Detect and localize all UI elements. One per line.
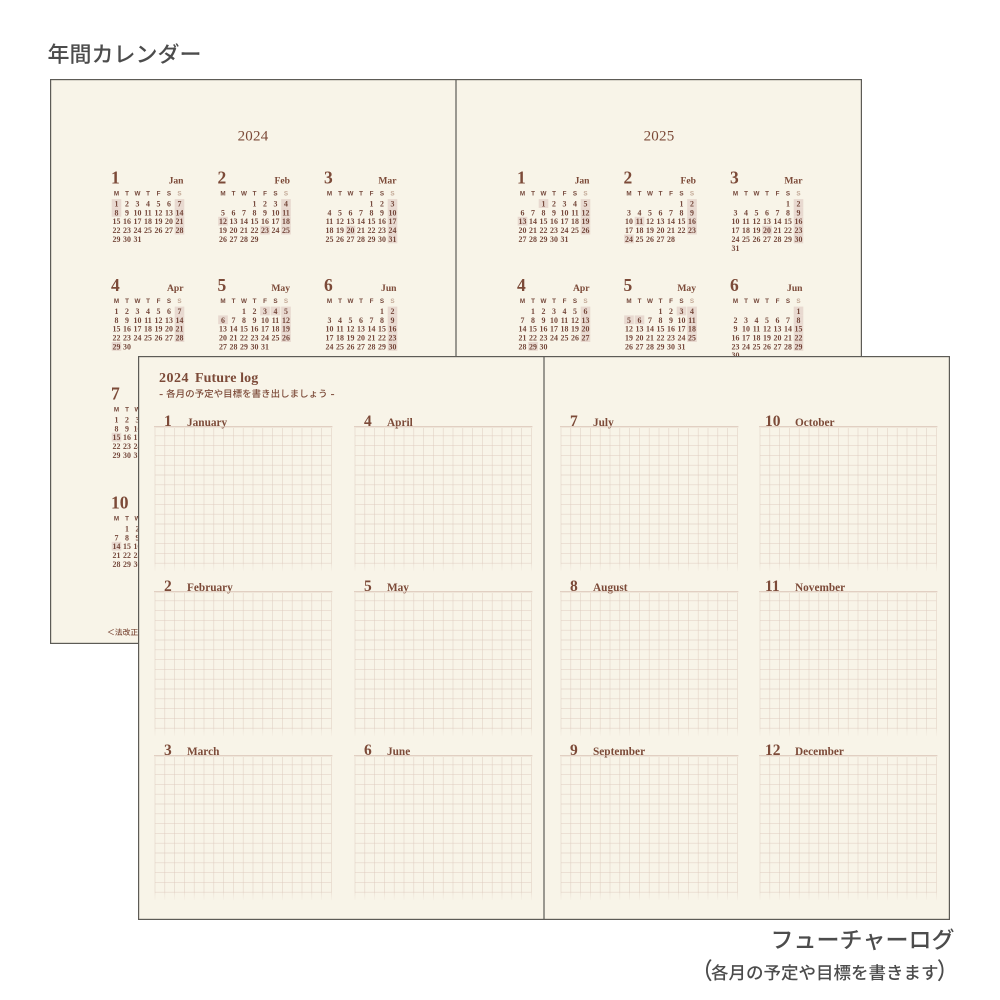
- svg-text:7: 7: [232, 316, 236, 325]
- svg-text:13: 13: [657, 217, 665, 226]
- svg-text:S: S: [390, 191, 394, 198]
- svg-text:24: 24: [550, 334, 558, 343]
- svg-text:8: 8: [125, 533, 129, 542]
- svg-text:W: W: [135, 191, 141, 198]
- svg-text:22: 22: [123, 551, 131, 560]
- svg-text:26: 26: [155, 334, 163, 343]
- svg-text:F: F: [370, 191, 374, 198]
- svg-text:14: 14: [667, 217, 675, 226]
- svg-text:14: 14: [519, 325, 527, 334]
- svg-text:T: T: [125, 191, 129, 198]
- svg-text:14: 14: [646, 325, 654, 334]
- svg-text:15: 15: [378, 325, 386, 334]
- svg-text:10: 10: [765, 413, 781, 430]
- svg-text:Mar: Mar: [784, 176, 803, 187]
- svg-text:1: 1: [659, 307, 663, 316]
- svg-text:11: 11: [561, 316, 569, 325]
- svg-text:8: 8: [680, 208, 684, 217]
- svg-text:8: 8: [570, 578, 578, 595]
- svg-text:9: 9: [253, 316, 257, 325]
- svg-text:1: 1: [115, 200, 119, 209]
- svg-text:10: 10: [625, 217, 633, 226]
- svg-text:M: M: [220, 298, 225, 305]
- svg-text:15: 15: [123, 542, 131, 551]
- svg-text:20: 20: [357, 334, 365, 343]
- svg-text:S: S: [167, 191, 171, 198]
- svg-text:2: 2: [542, 307, 546, 316]
- svg-text:1: 1: [517, 168, 526, 188]
- svg-text:4: 4: [744, 208, 748, 217]
- svg-text:22: 22: [540, 226, 548, 235]
- svg-text:4: 4: [111, 275, 120, 295]
- svg-text:16: 16: [732, 334, 740, 343]
- svg-text:4: 4: [338, 316, 342, 325]
- svg-text:15: 15: [251, 217, 259, 226]
- svg-text:19: 19: [763, 334, 771, 343]
- svg-text:F: F: [669, 191, 673, 198]
- svg-text:7: 7: [531, 208, 535, 217]
- svg-text:T: T: [765, 191, 769, 198]
- svg-text:28: 28: [519, 342, 527, 351]
- svg-text:14: 14: [230, 325, 238, 334]
- svg-text:M: M: [733, 191, 738, 198]
- svg-text:Mar: Mar: [378, 176, 397, 187]
- svg-text:31: 31: [732, 244, 740, 253]
- svg-text:20: 20: [347, 226, 355, 235]
- svg-text:M: M: [327, 191, 332, 198]
- svg-text:8: 8: [115, 208, 119, 217]
- svg-text:23: 23: [389, 334, 397, 343]
- svg-text:1: 1: [125, 525, 129, 534]
- svg-text:W: W: [754, 298, 760, 305]
- svg-text:3: 3: [744, 316, 748, 325]
- svg-text:12: 12: [282, 316, 290, 325]
- svg-text:25: 25: [144, 226, 152, 235]
- svg-text:20: 20: [165, 217, 173, 226]
- svg-text:6: 6: [167, 200, 171, 209]
- svg-text:1: 1: [164, 413, 172, 430]
- svg-text:5: 5: [157, 307, 161, 316]
- svg-text:29: 29: [368, 235, 376, 244]
- svg-text:28: 28: [113, 560, 121, 569]
- svg-text:28: 28: [357, 235, 365, 244]
- svg-text:2: 2: [218, 168, 227, 188]
- svg-text:T: T: [232, 298, 236, 305]
- svg-text:2: 2: [624, 168, 633, 188]
- svg-text:30: 30: [540, 342, 548, 351]
- svg-text:31: 31: [561, 235, 569, 244]
- svg-text:25: 25: [272, 334, 280, 343]
- svg-text:2024: 2024: [159, 371, 189, 386]
- svg-text:7: 7: [776, 208, 780, 217]
- svg-text:21: 21: [646, 334, 654, 343]
- svg-text:19: 19: [155, 325, 163, 334]
- svg-text:20: 20: [219, 334, 227, 343]
- svg-text:26: 26: [582, 226, 590, 235]
- svg-text:11: 11: [688, 316, 696, 325]
- svg-text:25: 25: [282, 226, 290, 235]
- svg-text:Jan: Jan: [575, 176, 591, 187]
- svg-text:29: 29: [113, 342, 121, 351]
- svg-text:S: S: [380, 191, 384, 198]
- svg-text:21: 21: [667, 226, 675, 235]
- svg-text:3: 3: [680, 307, 684, 316]
- svg-text:1: 1: [531, 307, 535, 316]
- svg-text:8: 8: [531, 316, 535, 325]
- svg-text:23: 23: [123, 226, 131, 235]
- svg-text:10: 10: [134, 316, 142, 325]
- svg-text:3: 3: [164, 742, 172, 759]
- svg-text:4: 4: [563, 307, 567, 316]
- svg-text:19: 19: [347, 334, 355, 343]
- svg-text:11: 11: [144, 208, 152, 217]
- svg-text:17: 17: [625, 226, 633, 235]
- svg-text:F: F: [370, 298, 374, 305]
- svg-text:3: 3: [627, 208, 631, 217]
- svg-text:15: 15: [529, 325, 537, 334]
- svg-text:13: 13: [763, 217, 771, 226]
- svg-text:15: 15: [113, 325, 121, 334]
- svg-text:T: T: [359, 298, 363, 305]
- svg-text:11: 11: [144, 316, 152, 325]
- svg-text:28: 28: [176, 334, 184, 343]
- svg-text:12: 12: [155, 316, 163, 325]
- svg-text:S: S: [690, 298, 694, 305]
- svg-text:S: S: [573, 191, 577, 198]
- svg-text:T: T: [338, 298, 342, 305]
- svg-text:2: 2: [734, 316, 738, 325]
- svg-text:7: 7: [570, 413, 578, 430]
- svg-text:22: 22: [529, 334, 537, 343]
- svg-text:12: 12: [155, 208, 163, 217]
- svg-text:T: T: [146, 191, 150, 198]
- svg-text:7: 7: [178, 307, 182, 316]
- svg-text:18: 18: [144, 217, 152, 226]
- svg-text:3: 3: [324, 168, 333, 188]
- svg-text:31: 31: [134, 235, 142, 244]
- svg-text:21: 21: [176, 325, 184, 334]
- svg-text:24: 24: [732, 235, 740, 244]
- svg-text:29: 29: [378, 342, 386, 351]
- svg-text:24: 24: [134, 334, 142, 343]
- svg-text:Feb: Feb: [275, 176, 290, 187]
- svg-text:26: 26: [763, 342, 771, 351]
- svg-text:W: W: [647, 298, 653, 305]
- svg-text:T: T: [659, 191, 663, 198]
- svg-text:F: F: [263, 191, 267, 198]
- svg-text:S: S: [177, 298, 181, 305]
- svg-text:T: T: [232, 191, 236, 198]
- svg-text:18: 18: [336, 334, 344, 343]
- svg-text:T: T: [146, 298, 150, 305]
- svg-text:14: 14: [176, 316, 184, 325]
- svg-text:21: 21: [176, 217, 184, 226]
- svg-text:14: 14: [240, 217, 248, 226]
- svg-text:W: W: [241, 298, 247, 305]
- svg-text:25: 25: [144, 334, 152, 343]
- svg-text:22: 22: [678, 226, 686, 235]
- svg-text:20: 20: [230, 226, 238, 235]
- svg-text:13: 13: [165, 316, 173, 325]
- svg-text:S: S: [273, 191, 277, 198]
- svg-text:12: 12: [582, 208, 590, 217]
- svg-text:Feb: Feb: [681, 176, 696, 187]
- svg-text:9: 9: [797, 208, 801, 217]
- svg-text:1: 1: [242, 307, 246, 316]
- svg-text:4: 4: [517, 275, 526, 295]
- svg-text:12: 12: [646, 217, 654, 226]
- svg-text:3: 3: [734, 208, 738, 217]
- svg-text:29: 29: [240, 342, 248, 351]
- svg-text:10: 10: [134, 208, 142, 217]
- svg-text:1: 1: [111, 168, 120, 188]
- svg-text:22: 22: [113, 334, 121, 343]
- svg-text:18: 18: [326, 226, 334, 235]
- svg-text:12: 12: [336, 217, 344, 226]
- svg-text:2: 2: [125, 307, 129, 316]
- svg-text:17: 17: [326, 334, 334, 343]
- svg-text:22: 22: [251, 226, 259, 235]
- svg-text:9: 9: [391, 316, 395, 325]
- svg-text:30: 30: [123, 451, 131, 460]
- svg-text:5: 5: [157, 200, 161, 209]
- svg-text:13: 13: [582, 316, 590, 325]
- svg-text:18: 18: [144, 325, 152, 334]
- svg-text:13: 13: [347, 217, 355, 226]
- svg-text:13: 13: [219, 325, 227, 334]
- svg-text:20: 20: [582, 325, 590, 334]
- svg-text:2: 2: [253, 307, 257, 316]
- svg-text:5: 5: [765, 316, 769, 325]
- svg-text:10: 10: [732, 217, 740, 226]
- svg-text:7: 7: [370, 316, 374, 325]
- svg-text:26: 26: [347, 342, 355, 351]
- svg-text:4: 4: [146, 307, 150, 316]
- svg-text:16: 16: [550, 217, 558, 226]
- svg-text:12: 12: [625, 325, 633, 334]
- svg-text:12: 12: [765, 742, 781, 759]
- svg-text:23: 23: [795, 226, 803, 235]
- svg-text:T: T: [125, 298, 129, 305]
- svg-text:6: 6: [232, 208, 236, 217]
- svg-text:22: 22: [240, 334, 248, 343]
- svg-text:Future log: Future log: [195, 371, 258, 386]
- svg-text:13: 13: [165, 208, 173, 217]
- svg-text:16: 16: [378, 217, 386, 226]
- svg-text:12: 12: [763, 325, 771, 334]
- svg-text:7: 7: [359, 208, 363, 217]
- svg-text:21: 21: [230, 334, 238, 343]
- svg-text:8: 8: [253, 208, 257, 217]
- svg-text:29: 29: [795, 342, 803, 351]
- svg-text:28: 28: [368, 342, 376, 351]
- svg-text:9: 9: [734, 325, 738, 334]
- svg-text:30: 30: [123, 342, 131, 351]
- svg-text:1: 1: [542, 200, 546, 209]
- svg-text:Apr: Apr: [573, 283, 590, 294]
- svg-text:20: 20: [774, 334, 782, 343]
- svg-text:27: 27: [165, 226, 173, 235]
- svg-text:S: S: [284, 191, 288, 198]
- svg-text:S: S: [796, 298, 800, 305]
- svg-text:T: T: [253, 298, 257, 305]
- svg-text:1: 1: [786, 200, 790, 209]
- svg-text:14: 14: [113, 542, 121, 551]
- svg-text:21: 21: [357, 226, 365, 235]
- svg-text:26: 26: [753, 235, 761, 244]
- svg-text:26: 26: [571, 334, 579, 343]
- svg-text:W: W: [541, 298, 547, 305]
- svg-text:9: 9: [263, 208, 267, 217]
- svg-text:16: 16: [540, 325, 548, 334]
- svg-text:27: 27: [230, 235, 238, 244]
- svg-text:26: 26: [155, 226, 163, 235]
- svg-text:11: 11: [272, 316, 280, 325]
- svg-text:11: 11: [753, 325, 761, 334]
- svg-text:25: 25: [688, 334, 696, 343]
- svg-text:25: 25: [753, 342, 761, 351]
- svg-text:25: 25: [561, 334, 569, 343]
- svg-text:M: M: [114, 298, 119, 305]
- svg-text:9: 9: [125, 424, 129, 433]
- svg-text:13: 13: [357, 325, 365, 334]
- svg-text:18: 18: [561, 325, 569, 334]
- svg-text:2: 2: [669, 307, 673, 316]
- svg-text:T: T: [744, 298, 748, 305]
- svg-text:19: 19: [282, 325, 290, 334]
- svg-text:5: 5: [627, 316, 631, 325]
- svg-text:15: 15: [113, 217, 121, 226]
- svg-text:30: 30: [550, 235, 558, 244]
- svg-text:T: T: [765, 298, 769, 305]
- svg-text:M: M: [626, 191, 631, 198]
- svg-text:11: 11: [742, 217, 750, 226]
- svg-text:15: 15: [784, 217, 792, 226]
- svg-text:T: T: [253, 191, 257, 198]
- svg-text:20: 20: [636, 334, 644, 343]
- svg-text:13: 13: [774, 325, 782, 334]
- svg-text:19: 19: [336, 226, 344, 235]
- svg-text:29: 29: [657, 342, 665, 351]
- svg-text:17: 17: [272, 217, 280, 226]
- svg-text:1: 1: [797, 307, 801, 316]
- svg-text:29: 29: [540, 235, 548, 244]
- svg-text:26: 26: [282, 334, 290, 343]
- svg-text:23: 23: [540, 334, 548, 343]
- svg-text:T: T: [659, 298, 663, 305]
- svg-text:28: 28: [784, 342, 792, 351]
- svg-text:T: T: [531, 298, 535, 305]
- svg-text:28: 28: [646, 342, 654, 351]
- svg-text:M: M: [114, 407, 119, 414]
- svg-text:15: 15: [540, 217, 548, 226]
- svg-text:4: 4: [284, 200, 288, 209]
- svg-text:2: 2: [690, 200, 694, 209]
- svg-text:25: 25: [571, 226, 579, 235]
- svg-text:3: 3: [328, 316, 332, 325]
- svg-text:29: 29: [784, 235, 792, 244]
- svg-text:4: 4: [274, 307, 278, 316]
- svg-text:14: 14: [357, 217, 365, 226]
- svg-text:20: 20: [519, 226, 527, 235]
- svg-text:M: M: [114, 191, 119, 198]
- svg-text:S: S: [796, 191, 800, 198]
- svg-text:17: 17: [732, 226, 740, 235]
- svg-text:16: 16: [667, 325, 675, 334]
- svg-text:15: 15: [657, 325, 665, 334]
- svg-text:7: 7: [242, 208, 246, 217]
- svg-text:28: 28: [176, 226, 184, 235]
- svg-text:4: 4: [573, 200, 577, 209]
- svg-text:S: S: [167, 298, 171, 305]
- svg-text:W: W: [754, 191, 760, 198]
- svg-text:18: 18: [742, 226, 750, 235]
- svg-text:24: 24: [561, 226, 569, 235]
- svg-text:4: 4: [328, 208, 332, 217]
- svg-text:S: S: [679, 191, 683, 198]
- svg-text:2: 2: [263, 200, 267, 209]
- svg-text:10: 10: [678, 316, 686, 325]
- svg-text:Jan: Jan: [169, 176, 185, 187]
- svg-text:T: T: [638, 191, 642, 198]
- svg-text:2: 2: [380, 200, 384, 209]
- svg-text:5: 5: [364, 578, 372, 595]
- svg-text:8: 8: [797, 316, 801, 325]
- svg-text:4: 4: [755, 316, 759, 325]
- svg-text:9: 9: [552, 208, 556, 217]
- svg-text:12: 12: [753, 217, 761, 226]
- svg-text:8: 8: [115, 424, 119, 433]
- svg-text:2024: 2024: [238, 129, 269, 145]
- svg-text:10: 10: [389, 208, 397, 217]
- svg-text:13: 13: [519, 217, 527, 226]
- svg-text:16: 16: [795, 217, 803, 226]
- svg-text:28: 28: [774, 235, 782, 244]
- svg-text:18: 18: [571, 217, 579, 226]
- svg-text:T: T: [552, 298, 556, 305]
- svg-text:28: 28: [230, 342, 238, 351]
- svg-text:16: 16: [251, 325, 259, 334]
- svg-text:2: 2: [552, 200, 556, 209]
- svg-text:6: 6: [349, 208, 353, 217]
- svg-text:31: 31: [389, 235, 397, 244]
- svg-text:1: 1: [115, 416, 119, 425]
- svg-text:17: 17: [678, 325, 686, 334]
- svg-text:May: May: [677, 283, 696, 294]
- svg-text:S: S: [177, 191, 181, 198]
- svg-text:5: 5: [648, 208, 652, 217]
- svg-text:M: M: [114, 516, 119, 523]
- svg-text:6: 6: [221, 316, 225, 325]
- svg-text:26: 26: [336, 235, 344, 244]
- svg-text:23: 23: [123, 442, 131, 451]
- svg-text:T: T: [125, 516, 129, 523]
- svg-text:15: 15: [240, 325, 248, 334]
- svg-text:17: 17: [261, 325, 269, 334]
- svg-text:25: 25: [636, 235, 644, 244]
- svg-text:23: 23: [667, 334, 675, 343]
- svg-text:17: 17: [134, 217, 142, 226]
- svg-text:4: 4: [146, 200, 150, 209]
- svg-text:19: 19: [155, 217, 163, 226]
- svg-text:10: 10: [272, 208, 280, 217]
- svg-text:23: 23: [550, 226, 558, 235]
- svg-text:29: 29: [113, 451, 121, 460]
- svg-text:9: 9: [690, 208, 694, 217]
- svg-text:22: 22: [795, 334, 803, 343]
- svg-text:22: 22: [113, 442, 121, 451]
- svg-text:7: 7: [115, 533, 119, 542]
